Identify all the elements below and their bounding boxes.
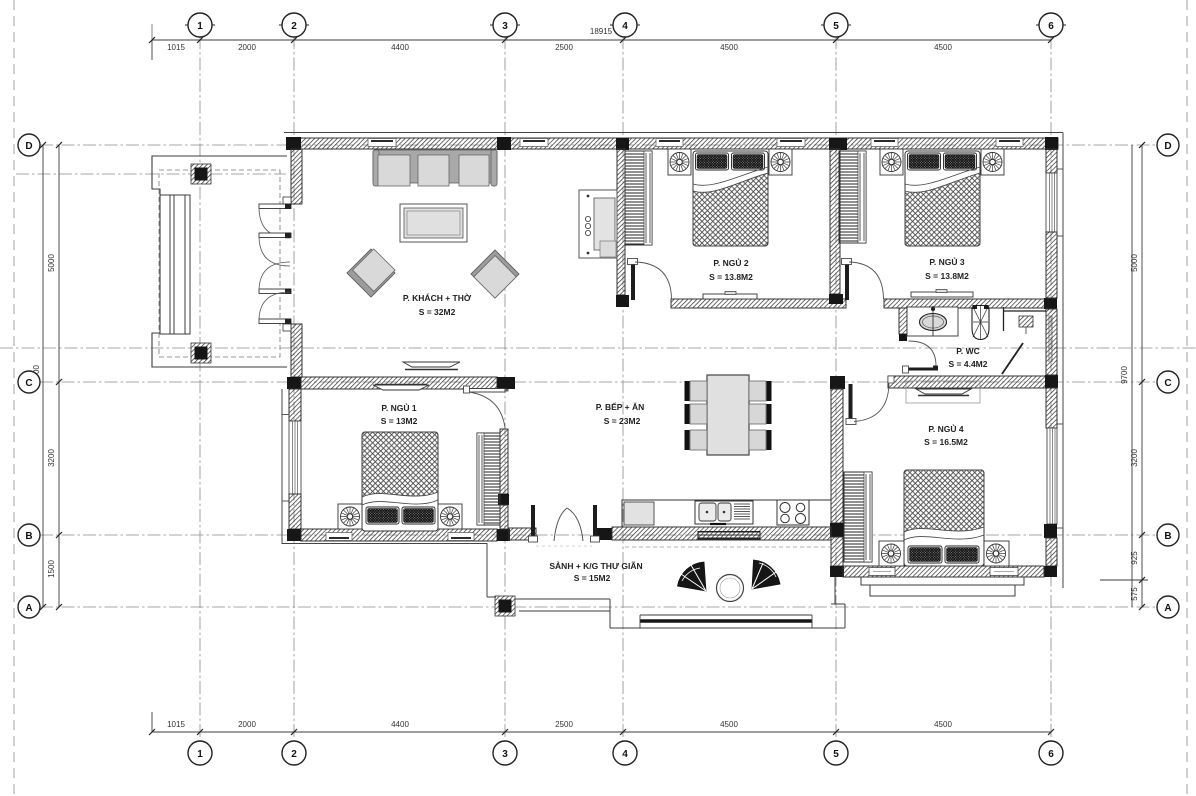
svg-text:2500: 2500 [555,43,573,52]
svg-text:1015: 1015 [167,43,185,52]
svg-text:A: A [1164,603,1171,614]
svg-text:B: B [25,531,32,542]
svg-text:4500: 4500 [720,43,738,52]
svg-text:6: 6 [1048,21,1054,32]
svg-text:S = 32M2: S = 32M2 [419,307,456,317]
svg-text:4500: 4500 [720,720,738,729]
svg-text:S = 13.8M2: S = 13.8M2 [709,272,753,282]
svg-text:S = 13.8M2: S = 13.8M2 [925,271,969,281]
svg-text:9700: 9700 [1120,366,1129,384]
svg-text:1500: 1500 [47,560,56,578]
svg-text:1015: 1015 [167,720,185,729]
svg-text:C: C [1164,378,1171,389]
svg-text:4: 4 [622,21,628,32]
svg-text:2: 2 [291,749,297,760]
svg-text:P. NGỦ 4: P. NGỦ 4 [928,423,964,434]
svg-text:D: D [1164,141,1171,152]
svg-text:5000: 5000 [1130,254,1139,272]
svg-text:5: 5 [833,21,839,32]
svg-text:D: D [25,141,32,152]
svg-text:S = 16.5M2: S = 16.5M2 [924,437,968,447]
svg-text:1: 1 [197,749,203,760]
svg-text:P. NGỦ 2: P. NGỦ 2 [713,257,749,268]
svg-text:2000: 2000 [238,720,256,729]
svg-text:3: 3 [502,749,508,760]
svg-text:4400: 4400 [391,720,409,729]
svg-text:2000: 2000 [238,43,256,52]
svg-text:A: A [25,603,32,614]
svg-text:5: 5 [833,749,839,760]
svg-text:4: 4 [622,749,628,760]
svg-text:575: 575 [1130,587,1139,601]
svg-text:3: 3 [502,21,508,32]
svg-text:P. NGỦ 3: P. NGỦ 3 [929,256,965,267]
svg-text:SẢNH + K/G THƯ GIÃN: SẢNH + K/G THƯ GIÃN [549,560,642,571]
svg-text:925: 925 [1130,551,1139,565]
svg-text:5000: 5000 [47,254,56,272]
svg-text:S = 23M2: S = 23M2 [604,416,641,426]
svg-text:6: 6 [1048,749,1054,760]
svg-text:B: B [1164,531,1171,542]
svg-text:S = 13M2: S = 13M2 [381,416,418,426]
svg-text:P. WC: P. WC [956,346,979,356]
svg-text:4400: 4400 [391,43,409,52]
svg-text:4500: 4500 [934,43,952,52]
svg-text:2500: 2500 [555,720,573,729]
svg-text:18915: 18915 [590,27,613,36]
svg-text:P. NGỦ 1: P. NGỦ 1 [381,402,417,413]
svg-text:3200: 3200 [1130,449,1139,467]
svg-text:4500: 4500 [934,720,952,729]
svg-text:C: C [25,378,32,389]
svg-text:S = 15M2: S = 15M2 [574,573,611,583]
svg-text:3200: 3200 [47,449,56,467]
svg-text:1: 1 [197,21,203,32]
svg-text:S = 4.4M2: S = 4.4M2 [949,359,988,369]
svg-text:2: 2 [291,21,297,32]
svg-text:P. BẾP + ĂN: P. BẾP + ĂN [596,402,645,412]
svg-text:P. KHÁCH + THỜ: P. KHÁCH + THỜ [403,292,472,303]
